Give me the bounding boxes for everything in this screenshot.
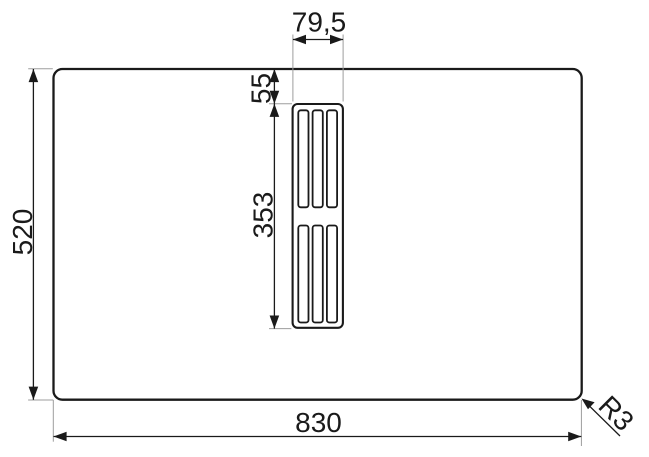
svg-text:520: 520 <box>7 209 38 256</box>
svg-text:79,5: 79,5 <box>292 7 347 38</box>
svg-text:353: 353 <box>248 192 279 239</box>
svg-text:830: 830 <box>295 407 342 438</box>
svg-text:55: 55 <box>246 73 277 104</box>
